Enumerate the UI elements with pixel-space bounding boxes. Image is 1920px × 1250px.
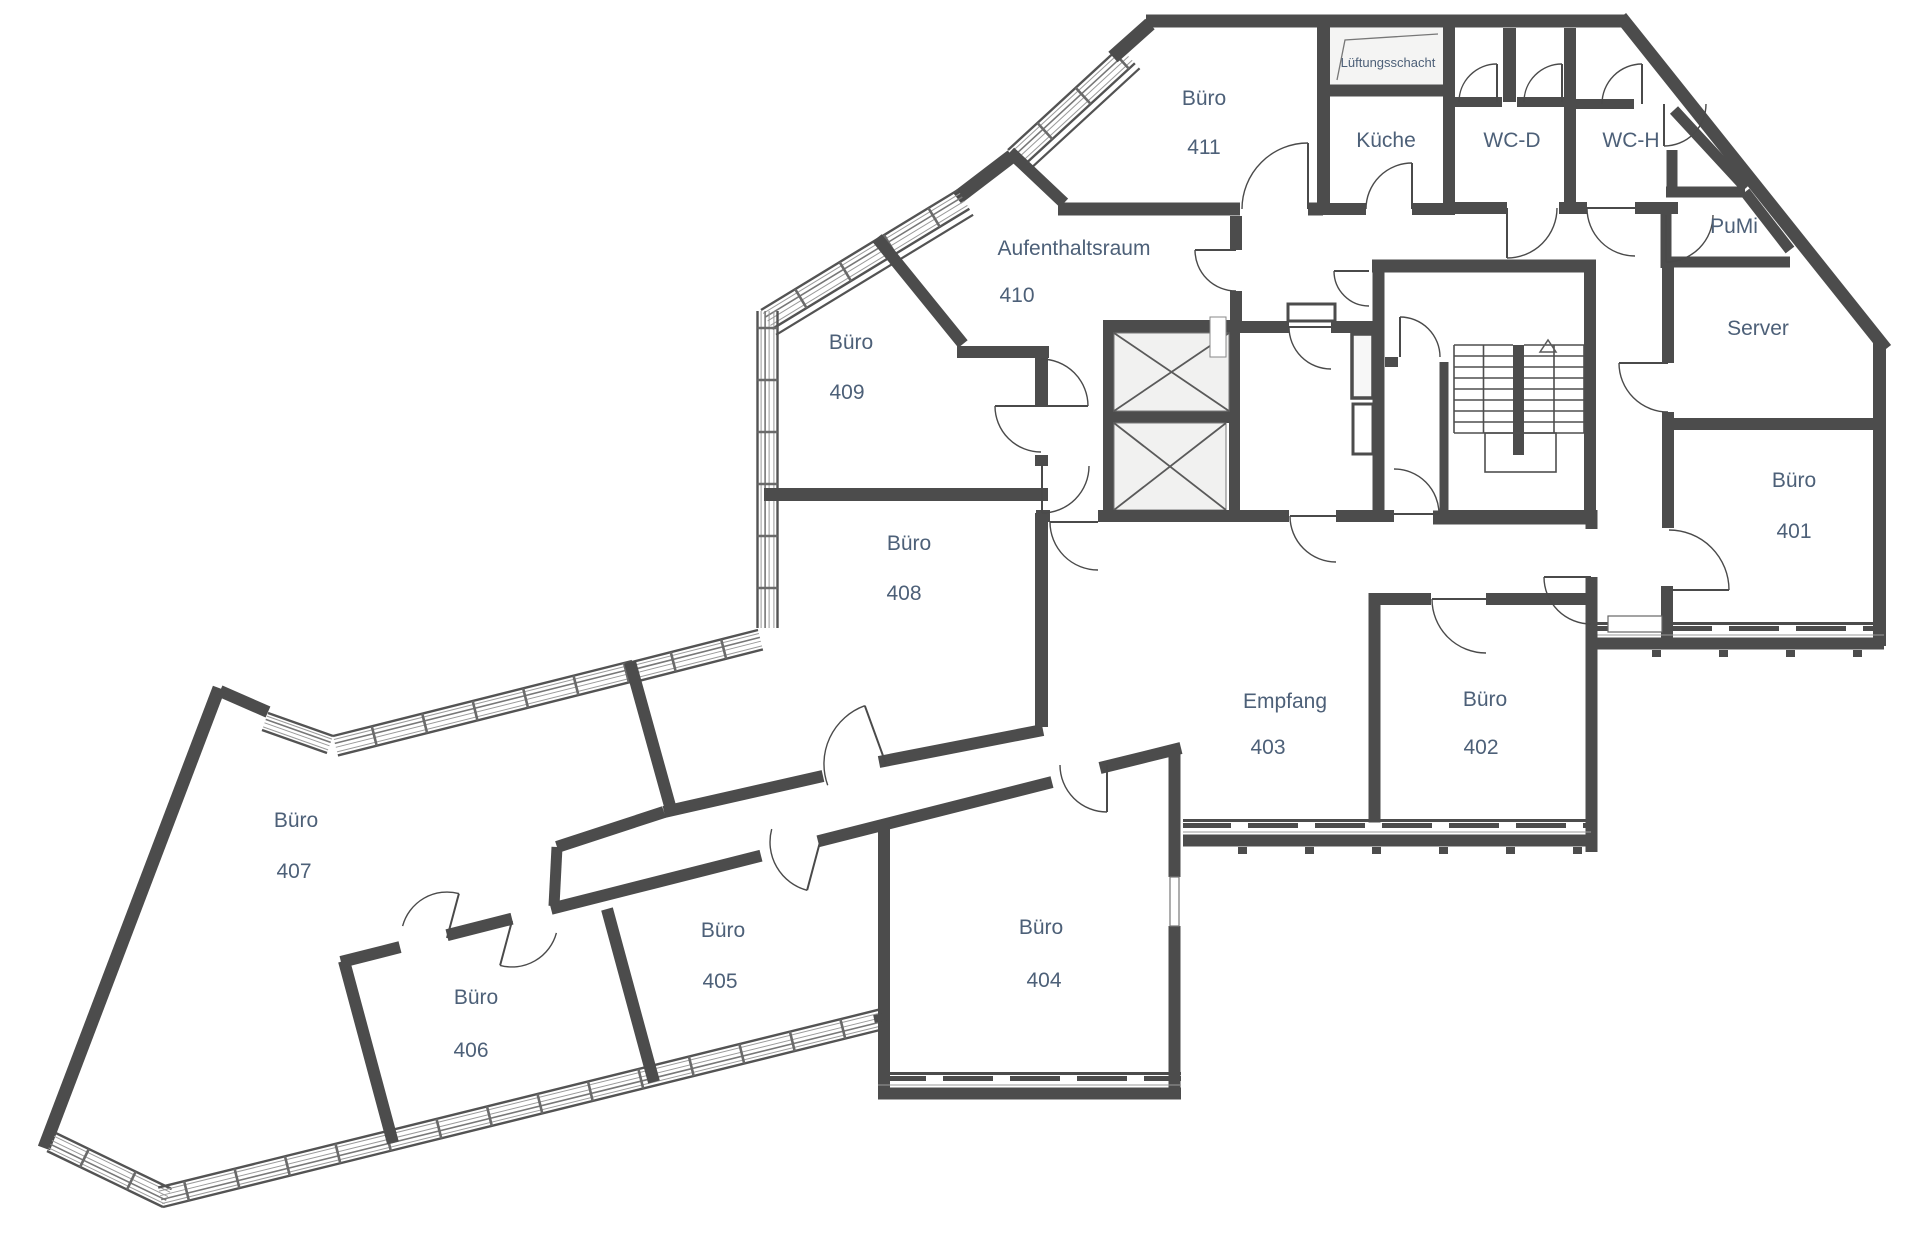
svg-text:405: 405	[702, 970, 737, 993]
svg-text:Küche: Küche	[1356, 129, 1416, 152]
svg-text:Büro: Büro	[1019, 916, 1063, 939]
svg-text:Büro: Büro	[1463, 688, 1507, 711]
svg-text:Lüftungsschacht: Lüftungsschacht	[1341, 55, 1436, 70]
svg-text:410: 410	[999, 284, 1034, 307]
svg-text:Büro: Büro	[454, 986, 498, 1009]
svg-text:Büro: Büro	[274, 809, 318, 832]
svg-text:Büro: Büro	[887, 532, 931, 555]
svg-text:411: 411	[1187, 136, 1220, 159]
svg-text:Server: Server	[1727, 317, 1789, 340]
svg-text:403: 403	[1250, 736, 1285, 759]
svg-text:406: 406	[453, 1039, 488, 1062]
svg-text:409: 409	[829, 381, 864, 404]
svg-text:Büro: Büro	[1772, 469, 1816, 492]
svg-text:Büro: Büro	[1182, 87, 1226, 110]
svg-text:Empfang: Empfang	[1243, 690, 1327, 713]
svg-text:401: 401	[1776, 520, 1811, 543]
svg-text:Büro: Büro	[829, 331, 873, 354]
svg-text:Aufenthaltsraum: Aufenthaltsraum	[998, 237, 1151, 260]
svg-text:402: 402	[1463, 736, 1498, 759]
svg-text:404: 404	[1026, 969, 1061, 992]
svg-text:408: 408	[886, 582, 921, 605]
svg-text:PuMi: PuMi	[1710, 215, 1758, 238]
svg-text:WC-H: WC-H	[1602, 129, 1659, 152]
svg-text:WC-D: WC-D	[1483, 129, 1540, 152]
svg-text:407: 407	[276, 860, 311, 883]
svg-text:Büro: Büro	[701, 919, 745, 942]
